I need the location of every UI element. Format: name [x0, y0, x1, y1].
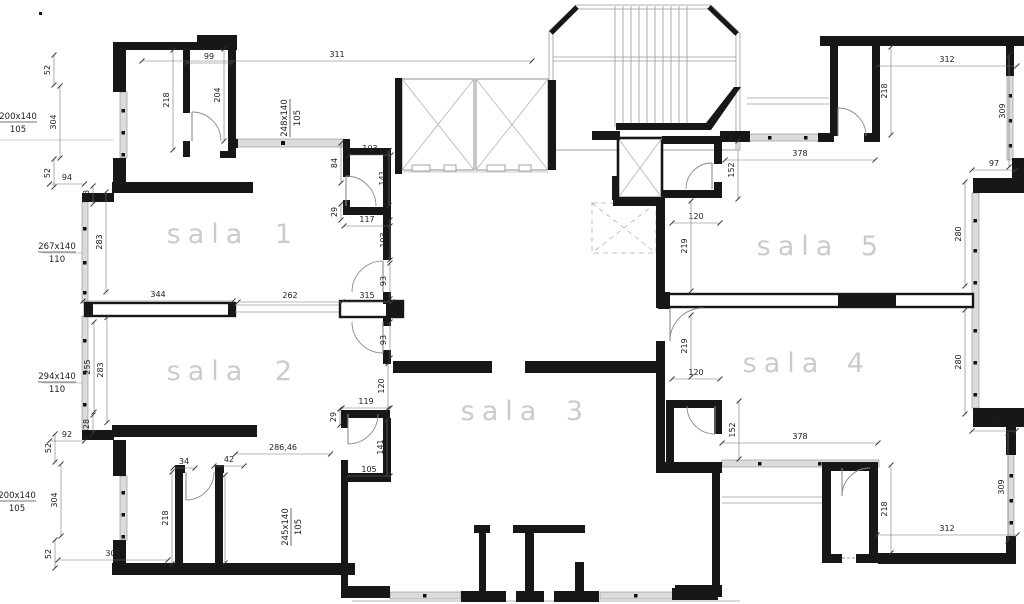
window-size-label-1: 267x140110	[38, 242, 76, 265]
dimension-label: 120	[377, 378, 386, 393]
dimension-label: 280	[954, 354, 963, 369]
dimension-99-1: 99	[184, 52, 235, 66]
dimension-label: 286,46	[269, 443, 297, 452]
room-number: 1	[275, 219, 299, 250]
room-number: 2	[275, 356, 299, 387]
dimension-label: 378	[792, 149, 807, 158]
dimension-97-50: 97	[970, 159, 1019, 173]
dimension-label: 141	[378, 170, 387, 185]
window-size-bottom: 105	[293, 110, 303, 126]
dimension-label: 311	[329, 50, 344, 59]
dimension-304-5: 304	[49, 84, 63, 161]
dimension-label: 99	[204, 52, 214, 61]
dimension-218-20: 218	[161, 470, 175, 567]
room-name: sala	[757, 231, 840, 262]
dimension-label: 262	[282, 291, 297, 300]
dimension-label: 315	[359, 291, 374, 300]
window-size-bottom: 110	[49, 255, 65, 265]
dimension-label: 204	[214, 511, 223, 526]
dimension-label: 29	[330, 207, 339, 217]
dimension-label: 304	[50, 492, 59, 507]
dimension-label: 307	[105, 549, 120, 558]
dimension-52-16: 52	[44, 432, 58, 465]
window-size-top: 248x140	[280, 99, 290, 136]
window-size-bottom: 105	[10, 125, 26, 135]
dimension-label: 52	[44, 443, 53, 453]
sala4-sala5-divider-wall	[666, 294, 973, 307]
dimension-304-17: 304	[50, 462, 64, 539]
dimension-120-43: 120	[670, 368, 723, 382]
window-size-top: 200x140	[0, 112, 37, 122]
dimension-label: 218	[162, 92, 171, 107]
dimension-label: 152	[727, 162, 736, 177]
window-size-label-5: 245x140105	[281, 508, 304, 546]
dimension-label: 103	[379, 232, 388, 247]
room-label-sala-2: sala2	[167, 356, 299, 387]
dimension-378-46: 378	[720, 432, 881, 446]
dimension-378-45: 378	[723, 149, 878, 163]
dimension-label: 218	[880, 501, 889, 516]
dimension-label: 312	[939, 524, 954, 533]
dimension-344-10: 344	[81, 290, 236, 304]
dimension-label: 92	[62, 430, 72, 439]
room-label-sala-4: sala4	[743, 348, 871, 379]
dimension-label: 93	[379, 276, 388, 286]
window-size-top: 200x140	[0, 491, 36, 501]
floor-plan-canvas: 3119952218204304529428283344262255283289…	[0, 0, 1024, 604]
dimension-280-51: 280	[954, 180, 968, 289]
window-size-bottom: 110	[49, 385, 65, 395]
window-size-top: 294x140	[38, 372, 75, 382]
dimension-label: 52	[43, 65, 52, 75]
dimension-label: 280	[954, 226, 963, 241]
dimension-286,46-24: 286,46	[233, 443, 333, 457]
window-size-top: 267x140	[38, 242, 75, 252]
dimension-119-35: 119	[340, 397, 393, 411]
dimension-218-55: 218	[880, 463, 894, 556]
window-size-top: 245x140	[281, 508, 291, 545]
dimension-label: 283	[95, 234, 104, 249]
dimension-120-40: 120	[670, 212, 723, 226]
stair-diagonal-wall	[616, 87, 741, 130]
dimension-label: 219	[680, 338, 689, 353]
dimension-52-6: 52	[43, 157, 57, 190]
dimension-312-47: 312	[875, 55, 1020, 69]
dimension-label: 152	[728, 422, 737, 437]
doors-group	[186, 108, 870, 558]
dimension-label: 304	[49, 114, 58, 129]
dimension-label: 103	[362, 144, 377, 153]
dimension-label: 120	[688, 212, 703, 221]
room-label-sala-5: sala5	[757, 231, 885, 262]
room-label-sala-3: sala3	[461, 396, 590, 427]
dimension-311-0: 311	[140, 50, 535, 64]
dimension-label: 28	[82, 190, 91, 200]
dimension-label: 42	[224, 455, 234, 464]
dimension-label: 105	[361, 465, 376, 474]
dimension-152-39: 152	[727, 139, 741, 202]
window-size-labels-group: 200x140105267x140110294x140110200x140105…	[0, 99, 304, 546]
dimension-283-13: 283	[96, 315, 110, 425]
room-label-sala-1: sala1	[167, 219, 299, 250]
dimension-label: 218	[161, 510, 170, 525]
dimension-94-7: 94	[47, 173, 87, 187]
dimension-label: 84	[330, 158, 339, 168]
dimension-218-48: 218	[880, 45, 894, 138]
dimension-52-2: 52	[43, 53, 57, 88]
dimension-262-11: 262	[236, 291, 345, 305]
dimension-label: 204	[213, 87, 222, 102]
dimension-92-15: 92	[47, 430, 87, 444]
dimension-label: 29	[329, 412, 338, 422]
dimension-218-3: 218	[162, 48, 176, 153]
dimension-280-52: 280	[954, 308, 968, 417]
dimension-label: 34	[179, 457, 189, 466]
room-name: sala	[743, 348, 826, 379]
window-size-label-4: 248x140105	[280, 99, 303, 137]
window-size-bottom: 105	[294, 519, 304, 535]
dimension-312-56: 312	[875, 524, 1020, 538]
dimension-label: 119	[358, 397, 373, 406]
dimension-label: 120	[688, 368, 703, 377]
dimension-label: 28	[82, 419, 91, 429]
room-name: sala	[167, 356, 250, 387]
room-name: sala	[167, 219, 250, 250]
room-number: 3	[566, 396, 590, 427]
window-size-label-3: 200x140105	[0, 491, 36, 514]
dimension-label: 52	[43, 168, 52, 178]
dimension-283-9: 283	[95, 190, 109, 295]
dimension-120-34: 120	[377, 361, 391, 411]
dimension-label: 97	[989, 420, 999, 429]
dimension-152-44: 152	[728, 399, 742, 462]
stairwell	[549, 5, 741, 150]
window-size-label-2: 294x140110	[38, 372, 76, 395]
room-name: sala	[461, 396, 544, 427]
dimension-label: 93	[379, 335, 388, 345]
dimension-label: 141	[376, 439, 385, 454]
dimension-label: 344	[150, 290, 165, 299]
window-size-label-0: 200x140105	[0, 112, 37, 135]
dimension-label: 283	[96, 362, 105, 377]
dimension-label: 97	[989, 159, 999, 168]
dimension-label: 117	[359, 215, 374, 224]
dimension-label: 312	[939, 55, 954, 64]
dimension-label: 94	[62, 173, 72, 182]
dimension-label: 52	[44, 549, 53, 559]
dimension-label: 309	[998, 103, 1007, 118]
dimension-label: 309	[997, 479, 1006, 494]
dimension-label: 255	[83, 359, 92, 374]
dimension-label: 218	[880, 83, 889, 98]
floor-plan-svg: 3119952218204304529428283344262255283289…	[0, 0, 1024, 604]
dimension-29-28: 29	[330, 202, 344, 223]
hollow-walls-group	[85, 292, 973, 317]
room-number: 5	[861, 231, 885, 262]
room-number: 4	[847, 348, 871, 379]
dimension-52-18: 52	[44, 538, 58, 571]
dimension-label: 378	[792, 432, 807, 441]
dimension-label: 219	[680, 238, 689, 253]
room-labels-group: sala1sala2sala3sala4sala5	[167, 219, 885, 427]
window-size-bottom: 105	[9, 504, 25, 514]
